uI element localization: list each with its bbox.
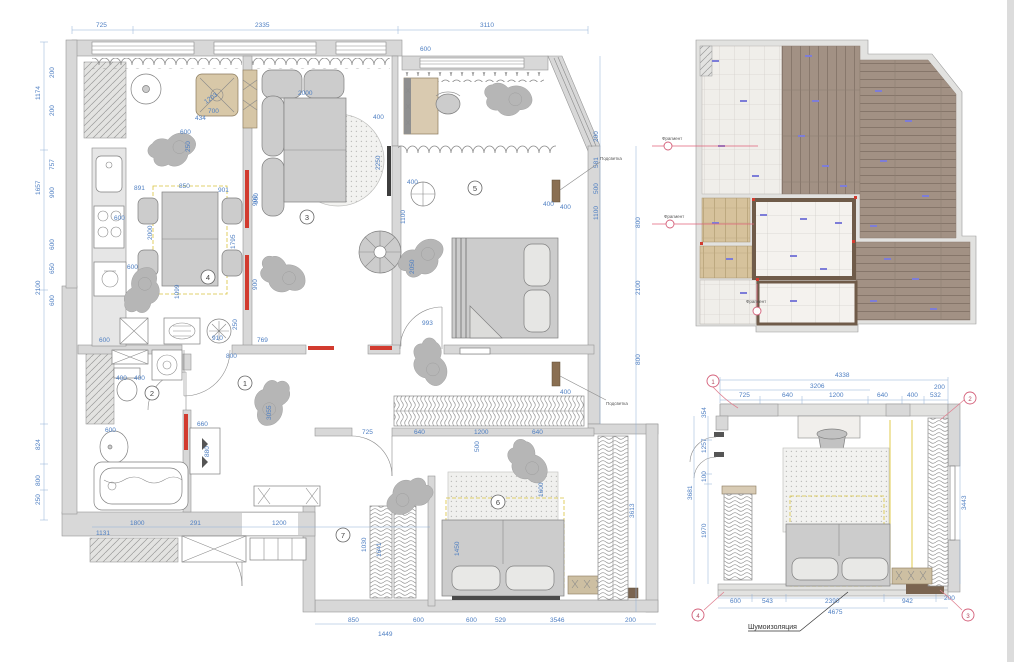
room-number: 6 (496, 498, 500, 507)
page-edge (1007, 0, 1014, 662)
tv-unit (243, 70, 257, 128)
dim-label: 200 (593, 131, 600, 142)
washing-machine (152, 350, 182, 380)
tile-room-lower (758, 282, 856, 324)
dim-label: 850 (348, 617, 359, 624)
dim-label: 1800 (130, 520, 145, 527)
dim-label: 4338 (835, 372, 850, 379)
dim-label: 993 (422, 320, 433, 327)
dim-label: 800 (635, 354, 642, 365)
dim-label: 757 (49, 159, 56, 170)
dim-label: 2335 (255, 22, 270, 29)
bedside-table (892, 568, 932, 584)
dim-label: 532 (930, 392, 941, 399)
dim-label: 1100 (593, 206, 600, 220)
dim-label: 800 (635, 217, 642, 228)
stair-landing (90, 536, 306, 562)
dim-label: 400 (134, 375, 145, 382)
dim-label: 824 (35, 439, 42, 450)
dim-label: 640 (414, 429, 425, 436)
dim-label: 600 (413, 617, 424, 624)
wall-unit (552, 362, 560, 386)
main-floor-plan: 1 2 3 4 5 6 7 725 2335 3110 600 1174 165… (35, 22, 658, 638)
dim-label: 900 (49, 187, 56, 198)
dim-label: 600 (730, 598, 741, 605)
room-number: 3 (305, 213, 309, 222)
dim-label: 900 (252, 279, 259, 290)
dim-label: 529 (495, 617, 506, 624)
dim-label: 400 (116, 375, 127, 382)
entry-opening (242, 513, 298, 535)
dim-label: 600 (466, 617, 477, 624)
dim-label: 942 (902, 598, 913, 605)
wood-tile-hall (700, 246, 752, 278)
dim-label: 1174 (35, 86, 42, 100)
dim-label: 1100 (400, 210, 407, 224)
detail-plan: 4338 3206 725 640 1200 640 400 532 200 3… (687, 372, 976, 631)
dim-label: 250 (232, 319, 239, 330)
room-number: 5 (473, 184, 477, 193)
tile-room-center (754, 200, 854, 278)
plank-floor-living (782, 46, 860, 194)
riser-hatch (86, 350, 114, 424)
dim-label: 1030 (361, 537, 368, 552)
dim-label: 2050 (409, 259, 416, 274)
tv-panel (387, 146, 391, 196)
room-number: 7 (341, 531, 345, 540)
dim-label: 640 (877, 392, 888, 399)
dim-label: 2100 (35, 280, 42, 295)
chair (436, 94, 460, 114)
dim-label: 3613 (629, 503, 636, 518)
dim-label: 600 (49, 295, 56, 306)
vent-shaft-hatch (700, 46, 712, 76)
dim-label: 3110 (480, 22, 494, 29)
dim-label: 400 (907, 392, 918, 399)
dim-label: 2000 (298, 90, 313, 97)
dim-label: 1200 (272, 520, 287, 527)
dim-label: 1970 (701, 523, 708, 538)
dim-label: 2390 (825, 598, 840, 605)
dim-label: 250 (185, 141, 192, 152)
dim-label: 910 (212, 335, 223, 342)
dim-label: 434 (195, 115, 206, 122)
dim-label: 1450 (454, 541, 461, 556)
note-label: Шумоизоляция (748, 624, 797, 631)
dim-label: 1641 (376, 542, 383, 557)
callout-label: Подсветка (600, 156, 622, 161)
dim-label: 600 (127, 264, 138, 271)
fragment-label: Фрагмент (664, 214, 684, 219)
dim-label: 4675 (828, 609, 843, 616)
dim-label: 250 (35, 494, 42, 505)
wall-unit (552, 180, 560, 202)
tile-floor-kitchen (702, 46, 782, 194)
dim-label: 600 (420, 46, 431, 53)
dim-label: 769 (257, 337, 268, 344)
room-number: 4 (206, 273, 210, 282)
dim-label: 354 (701, 407, 708, 418)
callout-label: Подсветка (606, 401, 628, 406)
dim-label: 640 (782, 392, 793, 399)
dim-label: 1200 (474, 429, 489, 436)
dim-label: 880 (204, 446, 211, 457)
living-furniture (243, 70, 401, 273)
toilet (117, 379, 137, 401)
dim-label: 2100 (635, 280, 642, 295)
dim-label: 543 (762, 598, 773, 605)
dim-label: 2250 (375, 155, 382, 170)
dim-label: 800 (35, 475, 42, 486)
dim-label: 900 (253, 193, 260, 204)
room-number: 2 (150, 389, 154, 398)
dim-label: 1449 (378, 631, 393, 638)
dim-label: 1200 (829, 392, 844, 399)
dim-label: 400 (543, 201, 554, 208)
dim-label: 400 (560, 204, 571, 211)
dim-label: 700 (208, 108, 219, 115)
dim-label: 891 (134, 185, 145, 192)
dim-label: 1131 (96, 530, 110, 537)
dim-label: 600 (49, 239, 56, 250)
dim-label: 725 (362, 429, 373, 436)
dim-label: 400 (373, 114, 384, 121)
dim-label: 500 (474, 441, 481, 452)
dim-label: 1657 (35, 180, 42, 195)
dim-label: 200 (934, 384, 945, 391)
plank-floor-bedroom6 (856, 242, 970, 320)
dim-label: 1600 (538, 482, 545, 497)
fragment-label: Фрагмент (662, 136, 682, 141)
sink (100, 431, 128, 463)
dim-label: 1795 (230, 234, 237, 249)
dim-label: 600 (105, 427, 116, 434)
room-number: 1 (243, 379, 247, 388)
fragment-label: Фрагмент (746, 299, 766, 304)
dim-label: 901 (218, 187, 229, 194)
dim-label: 400 (560, 389, 571, 396)
dim-label: 200 (49, 105, 56, 116)
dim-label: 3681 (687, 485, 694, 500)
dim-label: 640 (532, 429, 543, 436)
dim-label: 3443 (961, 495, 968, 510)
dim-label: 660 (197, 421, 208, 428)
dim-label: 600 (99, 337, 110, 344)
dim-label: 650 (49, 263, 56, 274)
dim-label: 1257 (701, 438, 708, 453)
dim-label: 291 (190, 520, 201, 527)
dim-label: 3055 (266, 405, 273, 420)
dim-label: 800 (226, 353, 237, 360)
dim-label: 2000 (147, 225, 154, 240)
dim-label: 725 (739, 392, 750, 399)
flooring-plan: Фрагмент Фрагмент Фрагмент (652, 40, 976, 332)
dim-label: 200 (625, 617, 636, 624)
dim-label: 400 (407, 179, 418, 186)
wood-tile-bath (702, 198, 750, 242)
dim-label: 725 (96, 22, 107, 29)
dim-label: 100 (701, 471, 708, 482)
plank-floor-bedroom5 (860, 60, 956, 238)
dim-label: 600 (114, 215, 125, 222)
balcony-furniture (404, 78, 460, 134)
dim-label: 3546 (550, 617, 565, 624)
dim-label: 500 (593, 183, 600, 194)
vent-shaft-hatch (84, 62, 126, 138)
dim-label: 3206 (810, 383, 825, 390)
tv-panel (452, 596, 560, 600)
dim-label: 850 (179, 183, 190, 190)
dim-label: 200 (49, 67, 56, 78)
wardrobe-top (722, 486, 756, 494)
floorplan-canvas: 1 2 3 4 5 6 7 725 2335 3110 600 1174 165… (0, 0, 1020, 662)
dim-label: 600 (180, 129, 191, 136)
dim-label: 1099 (174, 284, 181, 299)
